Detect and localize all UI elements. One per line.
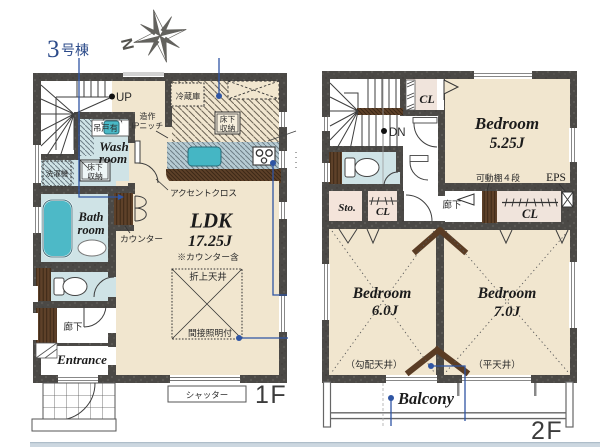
svg-text:UP: UP <box>116 92 132 104</box>
svg-text:Entrance: Entrance <box>56 352 107 367</box>
svg-text:DN: DN <box>389 127 406 139</box>
svg-text:アクセントクロス: アクセントクロス <box>170 188 237 198</box>
svg-text:Sto.: Sto. <box>338 202 355 214</box>
svg-text:Balcony: Balcony <box>397 389 455 408</box>
svg-text:可動棚４段: 可動棚４段 <box>476 172 520 183</box>
svg-text:room: room <box>99 151 127 166</box>
svg-text:号棟: 号棟 <box>61 42 89 58</box>
svg-text:吊戸有: 吊戸有 <box>93 123 118 133</box>
svg-text:間接照明付: 間接照明付 <box>188 327 232 338</box>
svg-text:Bedroom: Bedroom <box>474 114 539 133</box>
svg-text:※カウンター含: ※カウンター含 <box>177 251 239 262</box>
svg-text:廊下: 廊下 <box>442 199 461 211</box>
svg-text:1F: 1F <box>255 381 287 409</box>
svg-text:冷蔵庫: 冷蔵庫 <box>176 91 201 101</box>
svg-text:17.25J: 17.25J <box>188 233 233 250</box>
svg-text:3: 3 <box>47 36 60 63</box>
svg-text:造作: 造作 <box>140 111 156 121</box>
svg-text:収納: 収納 <box>87 171 103 181</box>
svg-text:（勾配天井）: （勾配天井） <box>345 359 402 371</box>
svg-text:床下: 床下 <box>220 114 236 124</box>
svg-text:Bedroom: Bedroom <box>477 285 537 302</box>
svg-text:Bedroom: Bedroom <box>352 285 412 302</box>
svg-text:2F: 2F <box>531 417 563 445</box>
svg-text:5.25J: 5.25J <box>490 135 526 152</box>
svg-text:折上天井: 折上天井 <box>189 271 227 282</box>
svg-text:EPS: EPS <box>546 172 566 184</box>
svg-text:シャッター: シャッター <box>186 390 229 400</box>
svg-text:洗濯機: 洗濯機 <box>46 168 69 178</box>
svg-text:room: room <box>77 223 104 237</box>
svg-text:収納: 収納 <box>220 123 236 133</box>
svg-text:6.0J: 6.0J <box>372 303 399 319</box>
svg-text:カウンター: カウンター <box>120 234 163 244</box>
svg-text:Bath: Bath <box>77 210 103 224</box>
svg-text:7.0J: 7.0J <box>494 304 521 320</box>
svg-text:（平天井）: （平天井） <box>473 359 521 371</box>
svg-text:廊下: 廊下 <box>63 321 82 333</box>
svg-text:IPニッチ: IPニッチ <box>132 122 164 131</box>
svg-text:LDK: LDK <box>189 209 234 233</box>
svg-text:CL: CL <box>522 207 538 221</box>
svg-text:CL: CL <box>376 206 390 218</box>
svg-text:CL: CL <box>419 92 434 106</box>
